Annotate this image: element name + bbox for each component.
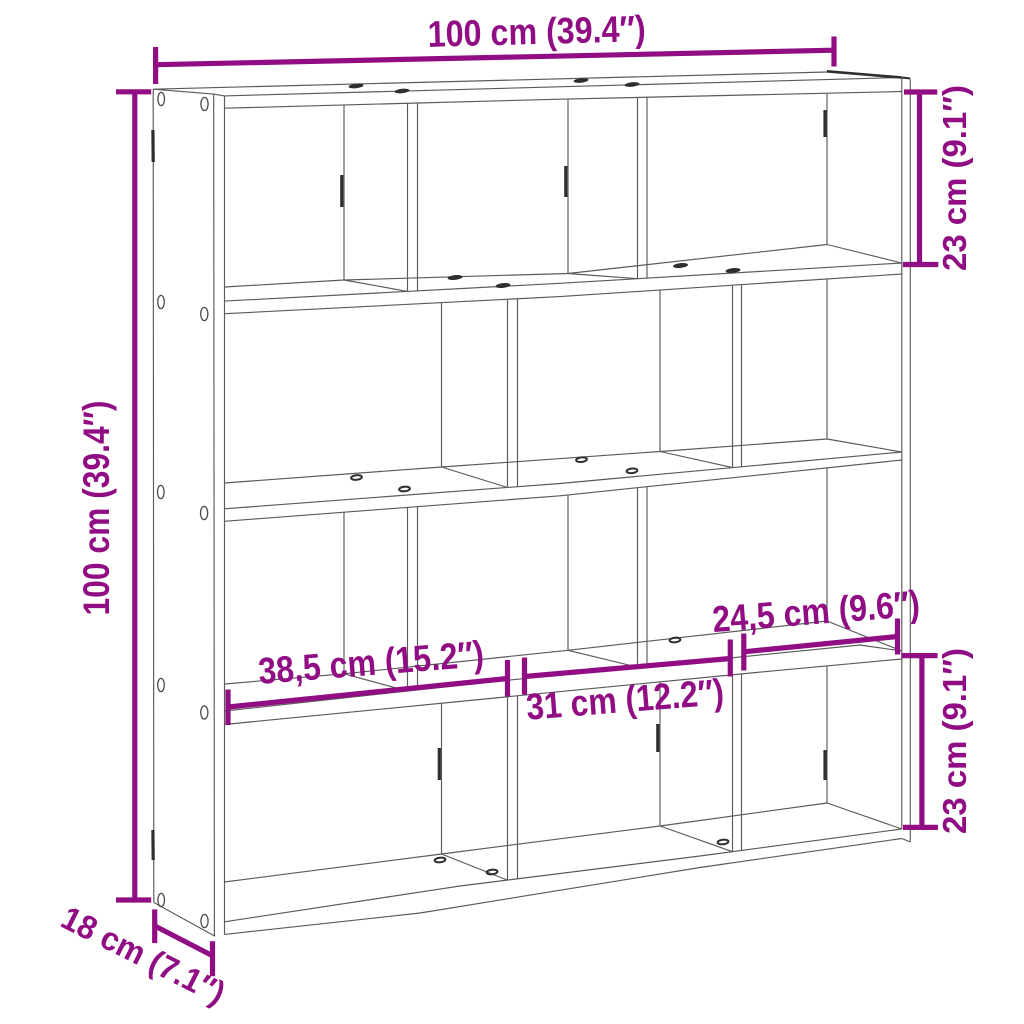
svg-text:100 cm (39.4″): 100 cm (39.4″) [427,8,646,55]
svg-text:100 cm (39.4″): 100 cm (39.4″) [76,401,117,616]
svg-text:23 cm (9.1″): 23 cm (9.1″) [936,85,973,271]
svg-text:23 cm (9.1″): 23 cm (9.1″) [936,648,973,834]
